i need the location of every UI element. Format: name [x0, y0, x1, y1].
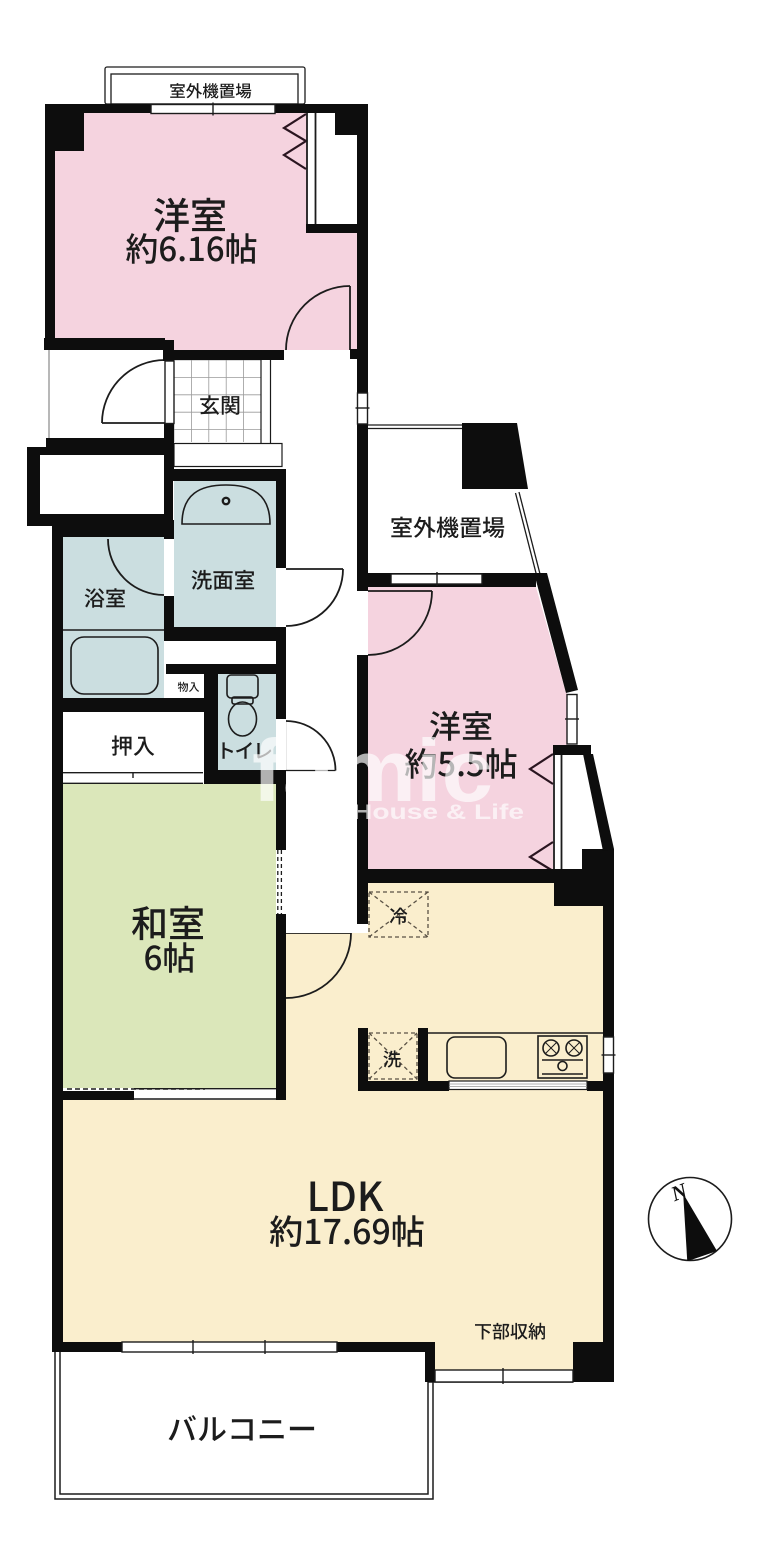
svg-text:House & Life: House & Life — [352, 801, 524, 824]
